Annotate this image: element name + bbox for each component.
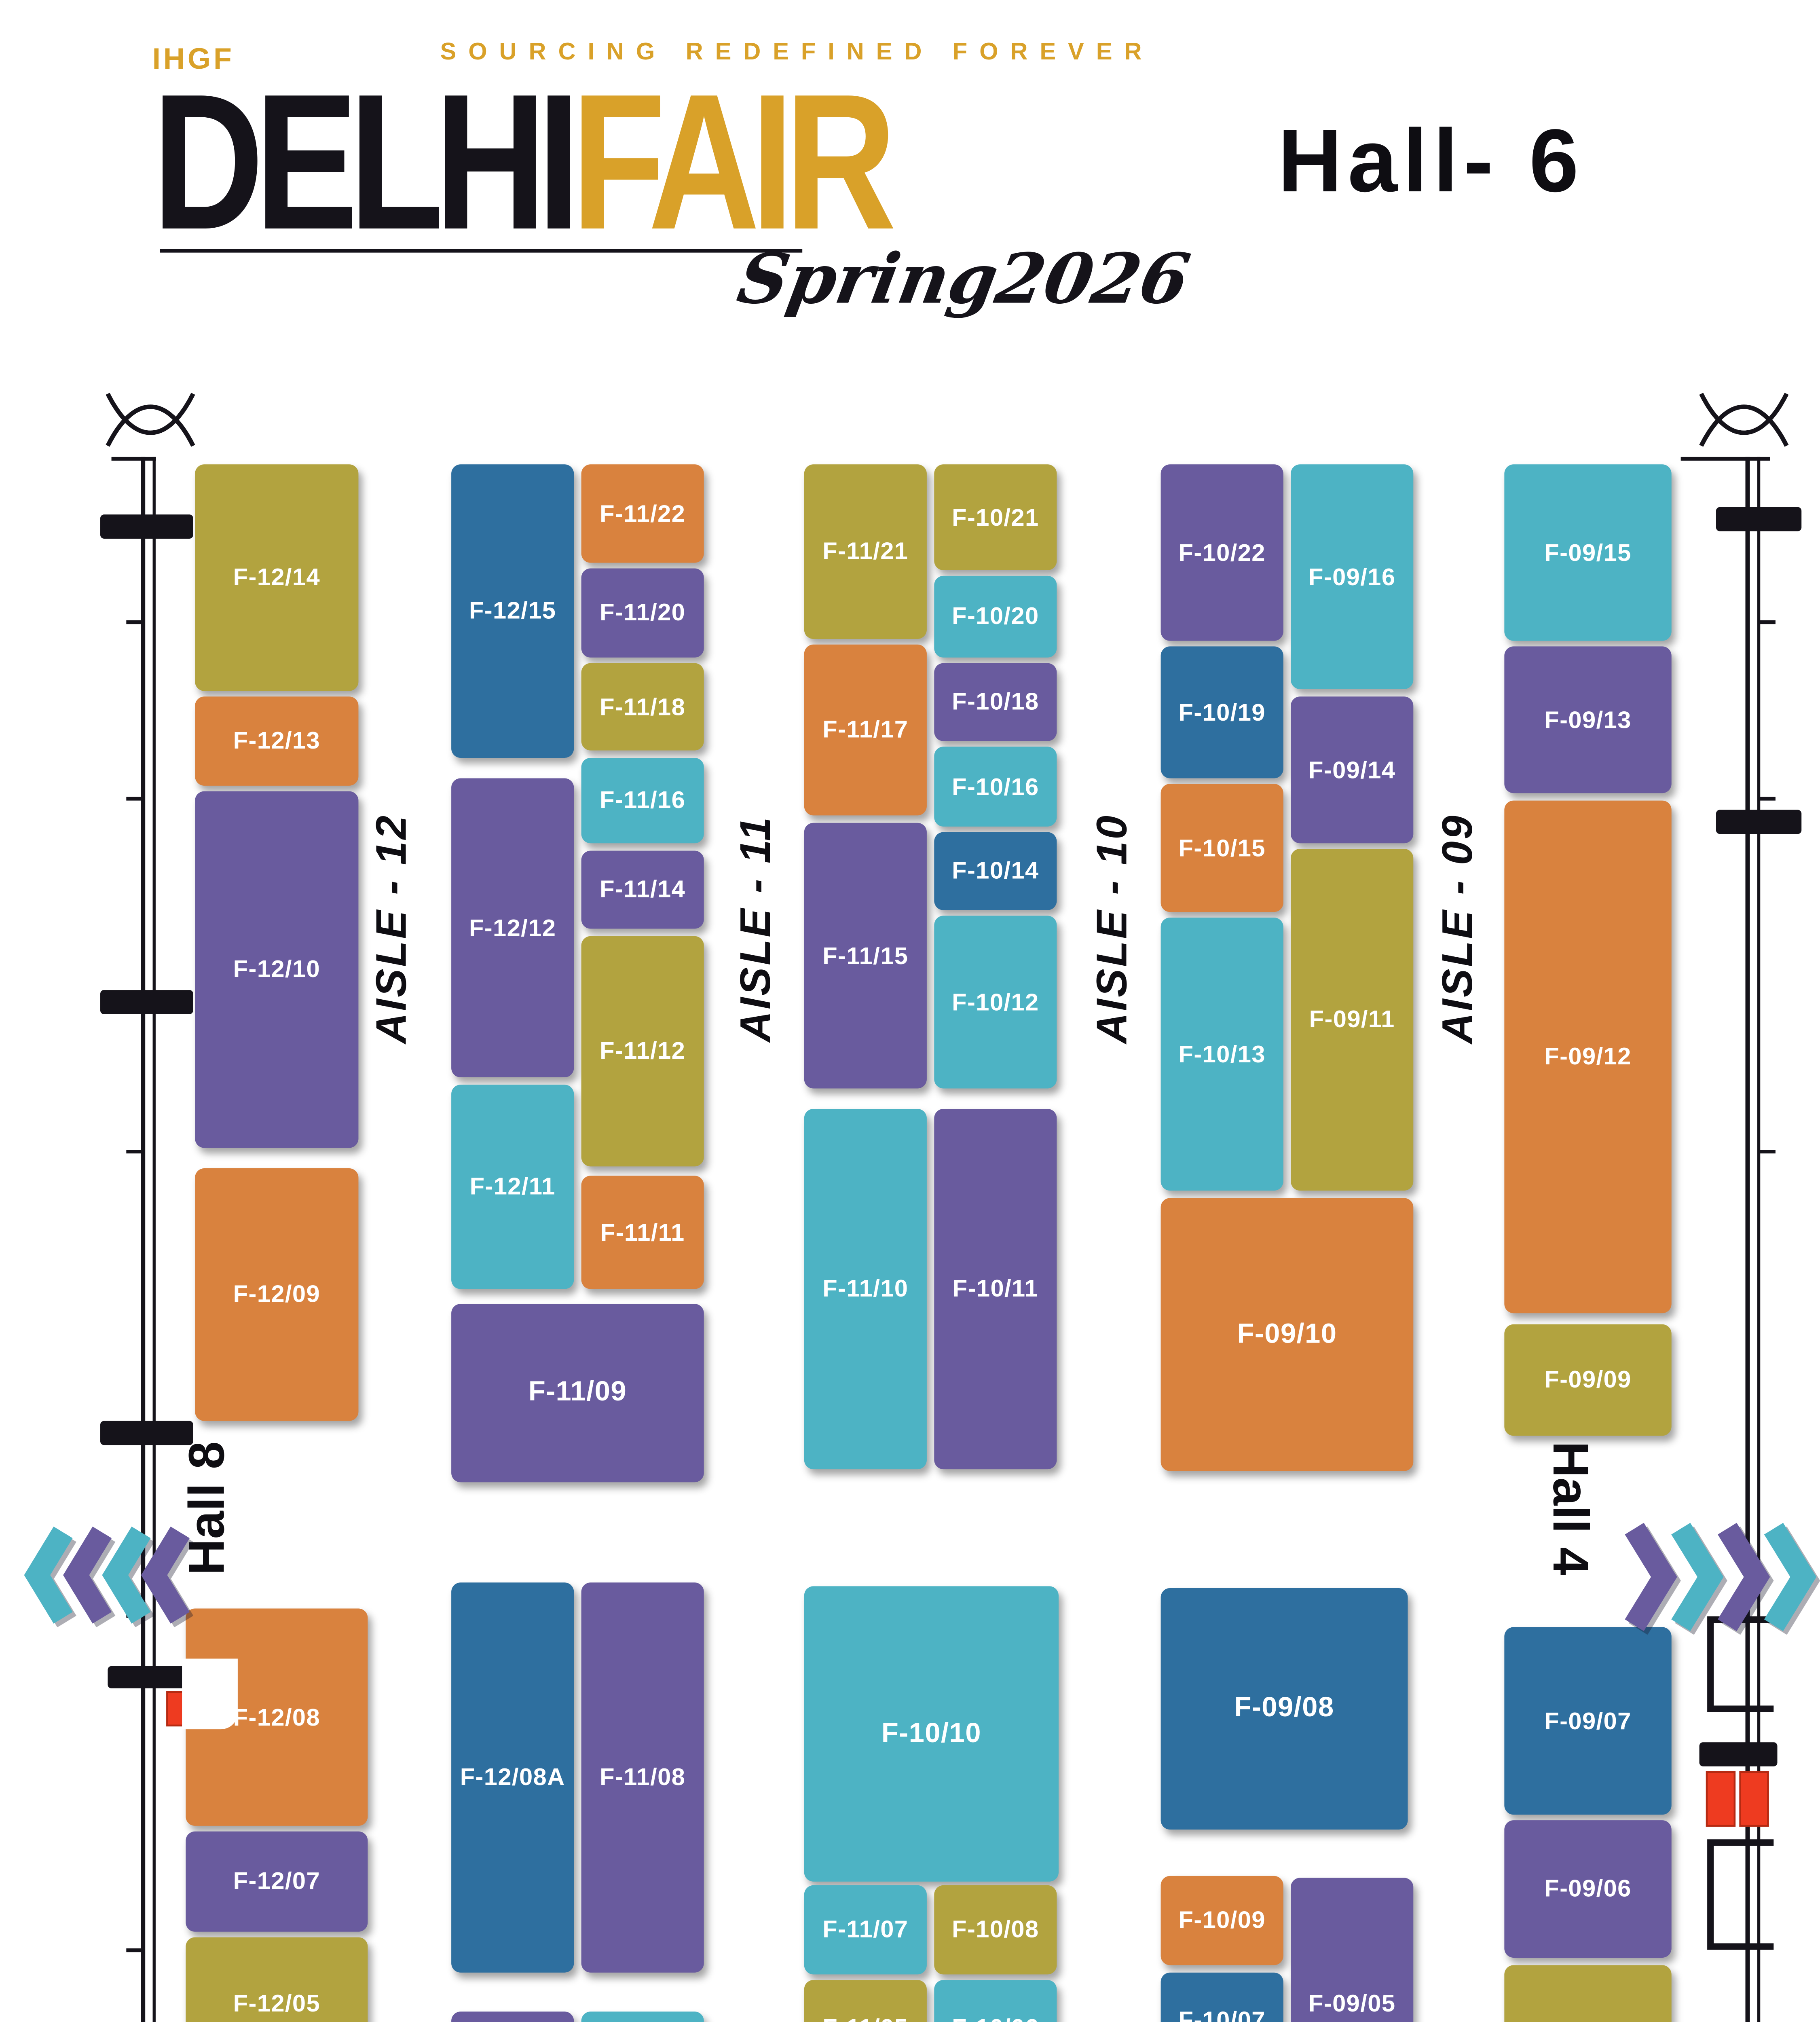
floor-plan-hall-6: SOURCING REDEFINED FOREVER IHGF DELHIFAI… (0, 0, 1820, 2022)
hall4-arrows-icon (1619, 1519, 1820, 1635)
arrow-layer (0, 0, 1820, 2022)
hall8-arrows-icon (15, 1523, 193, 1627)
